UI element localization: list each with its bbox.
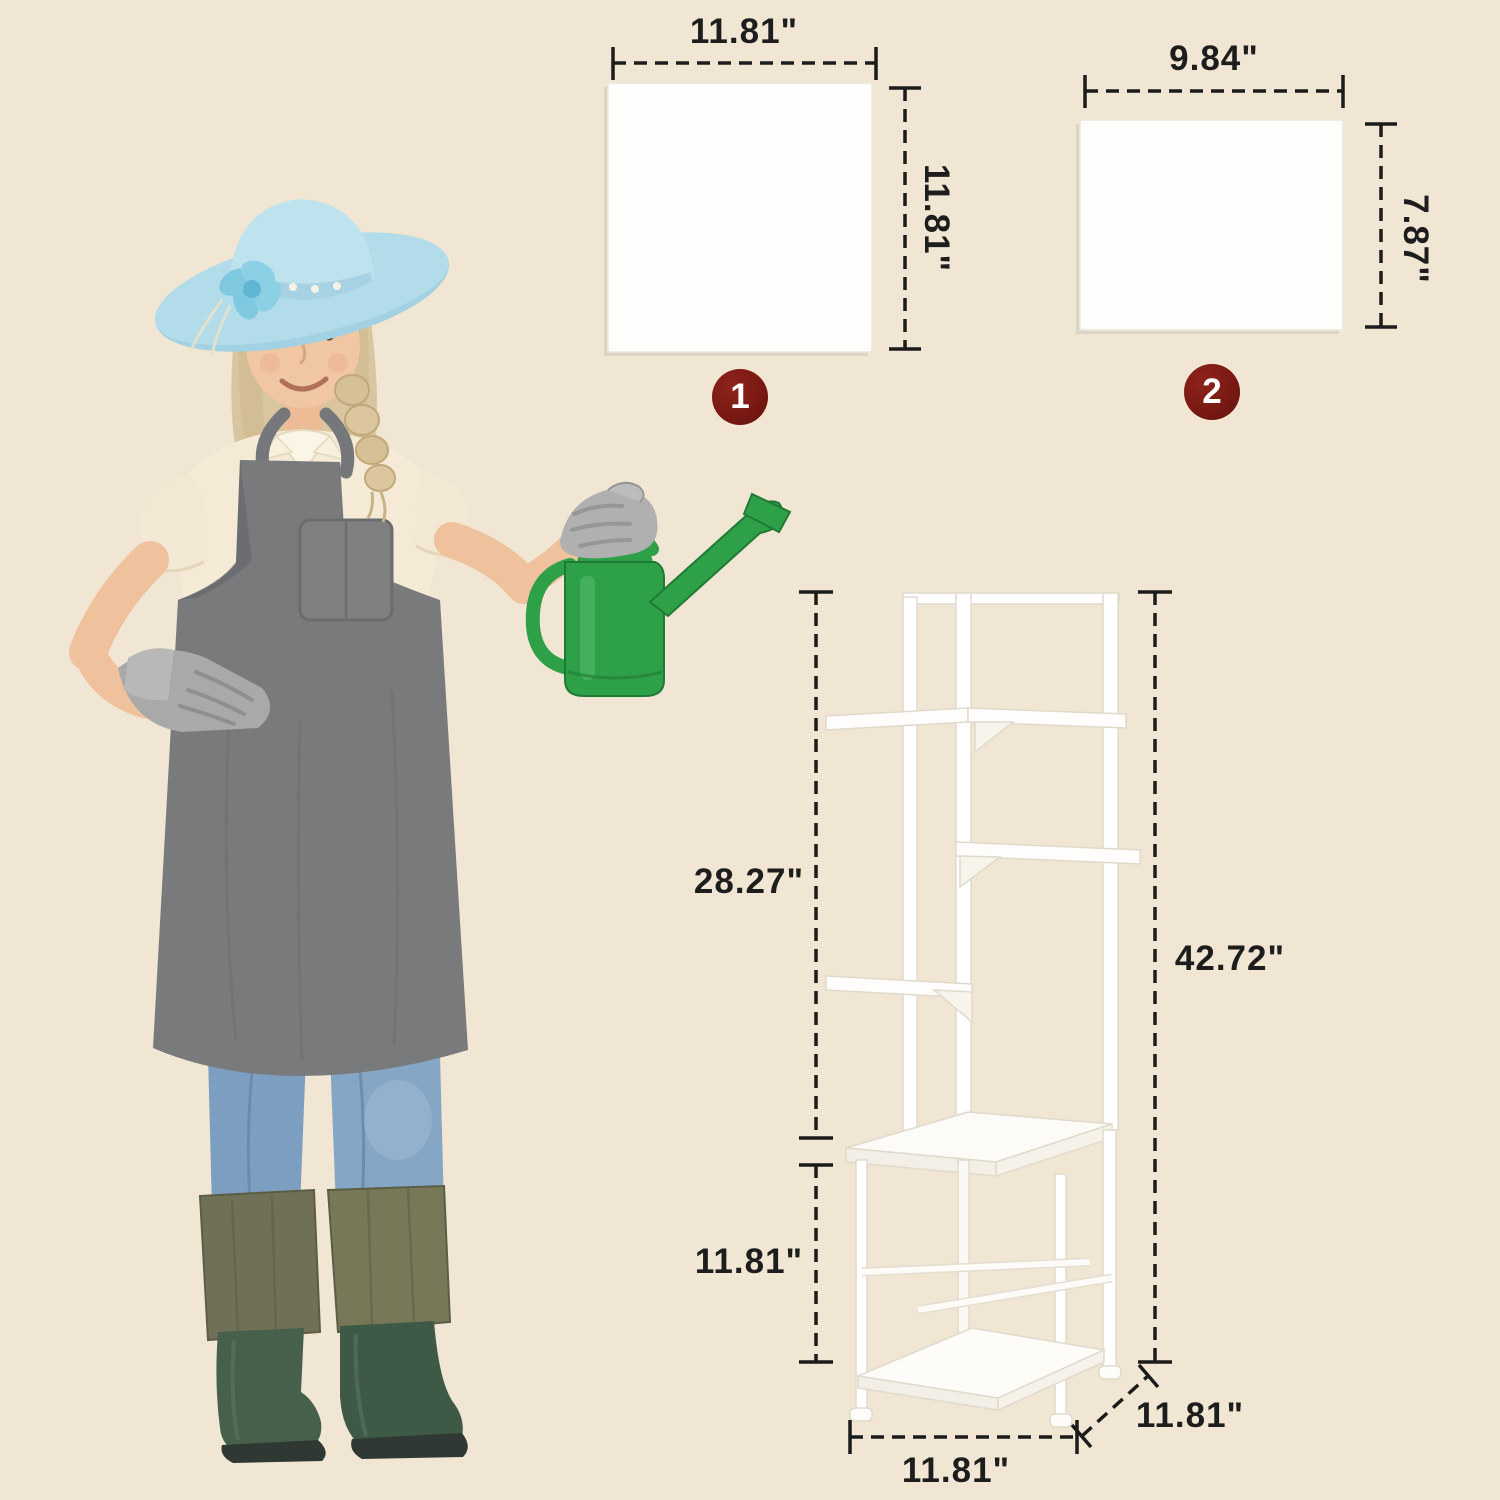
badge-2: 2 — [1184, 364, 1240, 420]
panel2-height-label: 7.87" — [1393, 139, 1437, 339]
stand-upper-height-label: 28.27" — [649, 860, 849, 904]
panel-board-1 — [604, 83, 872, 356]
stand-total-height-label: 42.72" — [1130, 937, 1330, 981]
jeans — [208, 1055, 444, 1208]
badge-1: 1 — [712, 369, 768, 425]
product-dimension-diagram: 11.81" 11.81" 1 9.84" 7.87" 2 28.27" 11.… — [0, 0, 1500, 1500]
corner-plant-stand — [826, 593, 1140, 1427]
panel1-width-label: 11.81" — [644, 10, 844, 54]
stand-bottom-shelf — [850, 1328, 1121, 1427]
stand-base-width-label: 11.81" — [856, 1449, 1056, 1493]
right-glove — [560, 483, 658, 559]
rubber-boots — [216, 1321, 467, 1463]
boot-cuffs — [200, 1186, 450, 1340]
stand-base-depth-label: 11.81" — [1090, 1394, 1290, 1438]
watering-can — [533, 483, 790, 696]
stand-lower-height-label: 11.81" — [649, 1240, 849, 1284]
stand-shelves — [826, 708, 1140, 1022]
stand-frame — [903, 593, 1119, 1160]
panel2-width-label: 9.84" — [1114, 37, 1314, 81]
panel-board-2 — [1076, 120, 1343, 334]
panel1-height-label: 11.81" — [914, 118, 958, 318]
